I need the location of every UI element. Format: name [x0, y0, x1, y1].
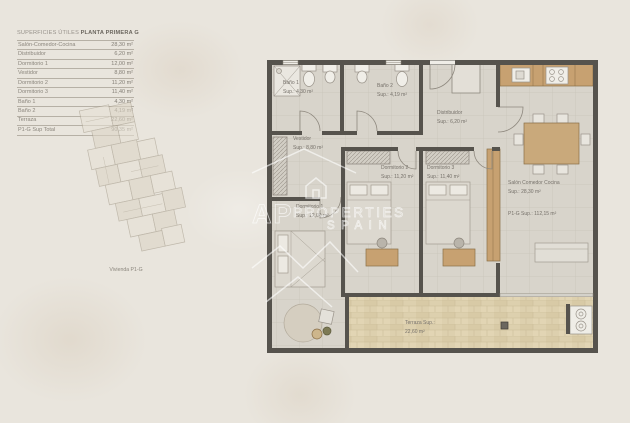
room-label-dormitorio2: Dormitorio 2 Sup.: 11,20 m²: [381, 166, 413, 180]
room-label-salon: Salón Comedor Cocina Sup.: 28,30 m²: [508, 181, 560, 195]
areas-table-title: SUPERFICIES ÚTILES: [17, 30, 79, 36]
room-label-distribuidor: Distribuidor Sup.: 6,20 m²: [437, 111, 467, 125]
row-label: Baño 2: [18, 109, 35, 115]
row-label: P1-G Sup Total: [18, 128, 55, 134]
room-label-bano2: Baño 2 Sup.: 4,19 m²: [377, 84, 407, 98]
row-label: Salón-Comedor-Cocina: [18, 43, 75, 49]
room-label-bano1: Baño 1 Sup.: 4,30 m²: [283, 81, 313, 95]
table-row: Distribuidor6,20 m²: [17, 49, 134, 58]
kitchen-counter: [500, 64, 593, 86]
overview-caption: Vivienda P1-G: [86, 267, 166, 273]
row-value: 12,00 m²: [111, 62, 133, 68]
entry-closet: [452, 64, 480, 93]
row-label: Vestidor: [18, 71, 38, 77]
row-label: Dormitorio 1: [18, 62, 48, 68]
room-label-dormitorio3: Dormitorio 3 Sup.: 11,40 m²: [427, 166, 459, 180]
row-label: Dormitorio 2: [18, 81, 48, 87]
sofa: [535, 243, 588, 262]
room-label-terraza: Terraza Sup.: 22,60 m²: [405, 321, 435, 335]
wood-wardrobe-column: [487, 149, 500, 261]
row-value: 28,30 m²: [111, 43, 133, 49]
row-label: Distribuidor: [18, 52, 46, 58]
room-label-vestidor: Vestidor Sup.: 8,80 m²: [293, 137, 323, 151]
total-area-label: P1-G Sup.: 112,15 m²: [508, 212, 556, 217]
building-overview-plan: [60, 85, 220, 275]
row-value: 6,20 m²: [114, 52, 133, 58]
table-row: Vestidor8,80 m²: [17, 68, 134, 77]
room-label-dormitorio1: Dormitorio 1 Sup.: 12,00 m²: [296, 205, 329, 219]
table-row: Dormitorio 112,00 m²: [17, 59, 134, 68]
row-label: Terraza: [18, 118, 36, 124]
table-row: Salón-Comedor-Cocina28,30 m²: [17, 40, 134, 49]
areas-table-plan-name: PLANTA PRIMERA G: [81, 30, 139, 36]
floor-plan-page: { "areas_table": { "header_left": "SUPER…: [0, 0, 630, 423]
row-label: Dormitorio 3: [18, 90, 48, 96]
areas-table-header: SUPERFICIES ÚTILES PLANTA PRIMERA G: [17, 30, 134, 36]
row-value: 8,80 m²: [114, 71, 133, 77]
row-label: Baño 1: [18, 100, 35, 106]
